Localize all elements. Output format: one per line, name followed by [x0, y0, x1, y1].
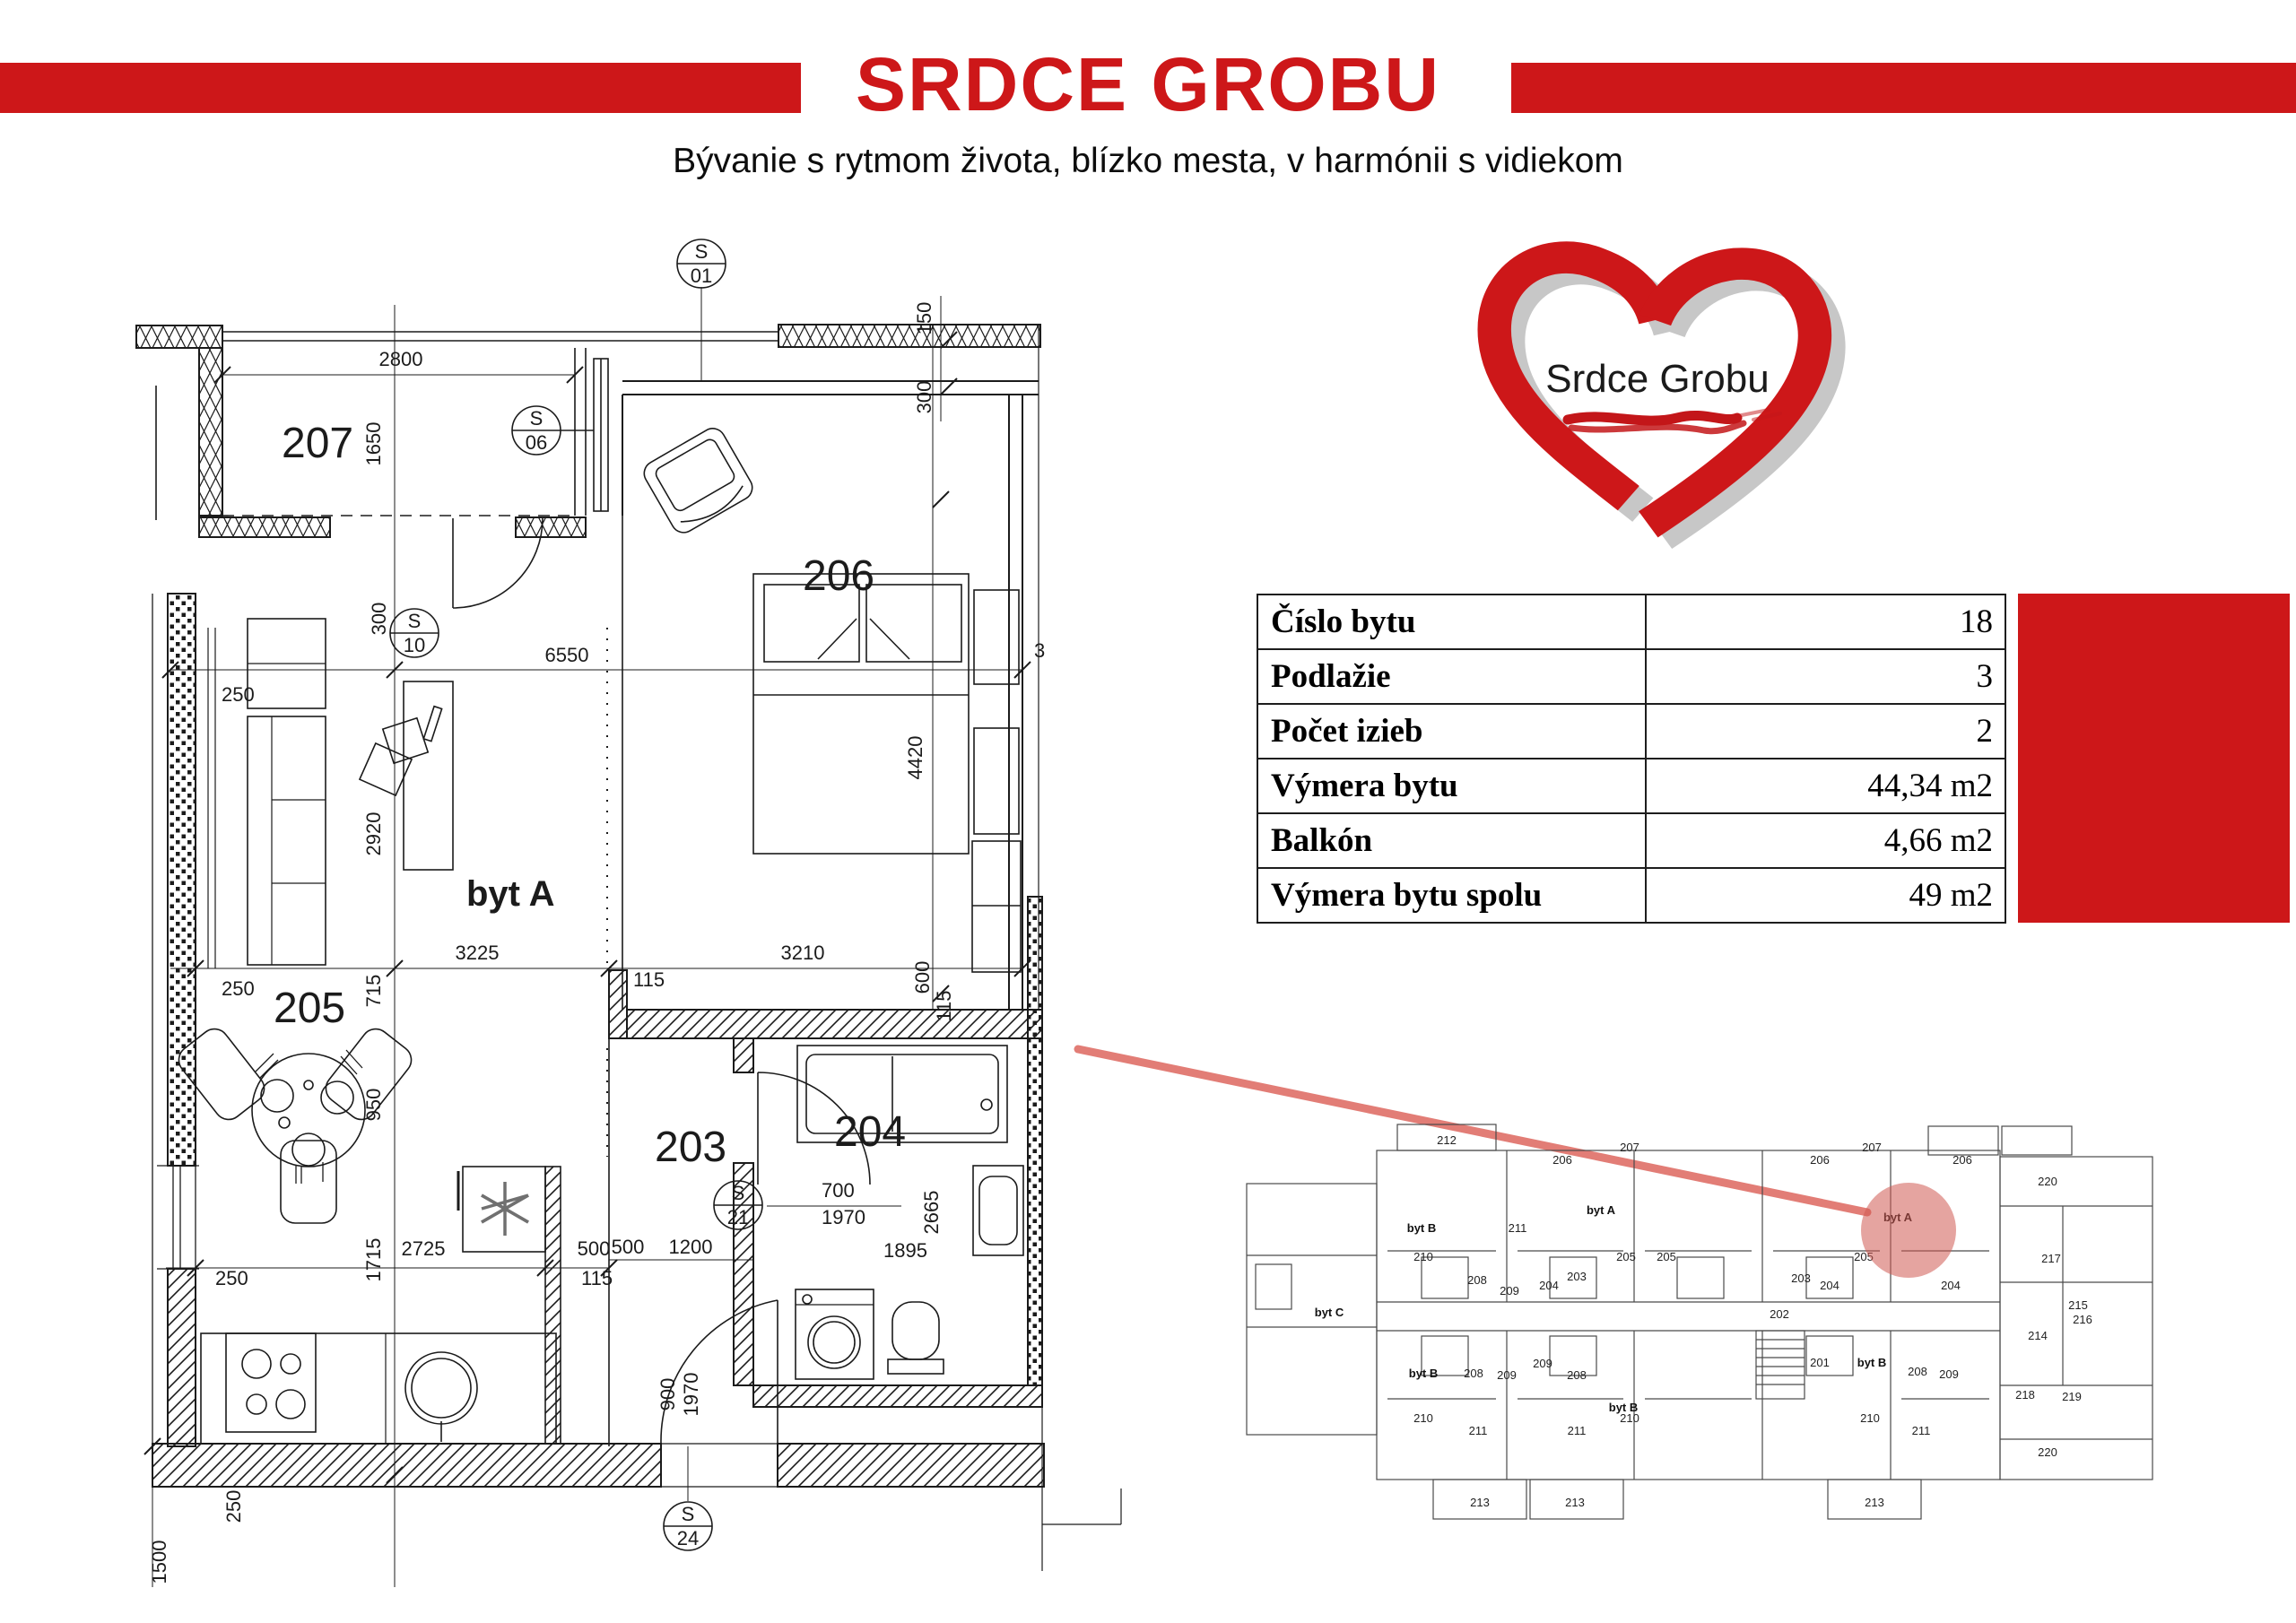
svg-text:4420: 4420 [904, 736, 926, 780]
svg-text:217: 217 [2041, 1252, 2061, 1265]
room-206-walls [622, 325, 1039, 1010]
svg-text:211: 211 [1912, 1424, 1931, 1437]
svg-text:S: S [682, 1503, 695, 1525]
svg-text:212: 212 [1437, 1133, 1457, 1147]
svg-text:115: 115 [581, 1267, 613, 1289]
brand-logo: Srdce Grobu [1494, 257, 1829, 536]
section-marker: S 21 [714, 1181, 762, 1229]
svg-text:S: S [732, 1182, 745, 1204]
svg-text:24: 24 [677, 1527, 699, 1549]
svg-text:205: 205 [1657, 1250, 1676, 1263]
svg-text:213: 213 [1565, 1496, 1585, 1509]
balcony-207-walls [156, 332, 778, 520]
svg-text:01: 01 [691, 265, 712, 287]
svg-text:1895: 1895 [883, 1239, 927, 1262]
svg-text:715: 715 [362, 975, 385, 1008]
svg-text:208: 208 [1467, 1273, 1487, 1287]
svg-text:220: 220 [2038, 1175, 2057, 1188]
svg-text:207: 207 [1620, 1141, 1639, 1154]
svg-text:250: 250 [222, 683, 255, 706]
svg-text:208: 208 [1567, 1368, 1587, 1382]
svg-text:10: 10 [404, 634, 425, 656]
svg-text:250: 250 [222, 977, 255, 1000]
svg-text:115: 115 [933, 990, 955, 1021]
toilet [888, 1302, 944, 1374]
svg-text:204: 204 [1820, 1279, 1839, 1292]
svg-text:byt B: byt B [1857, 1356, 1887, 1369]
svg-text:208: 208 [1464, 1367, 1483, 1380]
svg-text:3210: 3210 [781, 942, 825, 964]
svg-text:6550: 6550 [545, 644, 589, 666]
svg-text:213: 213 [1865, 1496, 1884, 1509]
snowflake-icon [482, 1182, 528, 1236]
svg-text:1715: 1715 [362, 1238, 385, 1282]
floor-plan: S 01 S 06 S 10 S 21 [136, 239, 1241, 1623]
drawing-overlay: Srdce Grobu [0, 0, 2296, 1623]
svg-text:206: 206 [1952, 1153, 1972, 1167]
svg-text:209: 209 [1533, 1357, 1552, 1370]
svg-text:211: 211 [1509, 1221, 1527, 1235]
svg-text:216: 216 [2073, 1313, 2092, 1326]
svg-text:500: 500 [578, 1237, 611, 1260]
section-markers: S 01 S 06 S 10 S 21 [390, 239, 762, 1550]
nightstands [972, 590, 1021, 972]
svg-text:1970: 1970 [680, 1373, 702, 1417]
svg-text:2725: 2725 [402, 1237, 446, 1260]
left-exterior-wall [152, 594, 199, 1446]
svg-text:S: S [408, 610, 422, 632]
svg-text:byt B: byt B [1407, 1221, 1437, 1235]
svg-text:S: S [695, 240, 709, 263]
unit-label: byt A [466, 874, 555, 914]
room-label-204: 204 [834, 1108, 906, 1156]
svg-text:byt B: byt B [1409, 1367, 1439, 1380]
bed [753, 574, 969, 854]
svg-text:byt A: byt A [1587, 1203, 1616, 1217]
svg-text:203: 203 [1567, 1270, 1587, 1283]
svg-text:207: 207 [1862, 1141, 1882, 1154]
svg-text:950: 950 [362, 1089, 385, 1122]
armchair [639, 424, 757, 537]
leader-line [1078, 1049, 1867, 1212]
svg-text:2665: 2665 [920, 1191, 943, 1235]
svg-text:213: 213 [1470, 1496, 1490, 1509]
hall-bath-walls [609, 897, 1042, 1446]
svg-text:208: 208 [1908, 1365, 1927, 1378]
dining-table [173, 1023, 417, 1223]
room-labels: 207 206 205 203 204 byt A [274, 420, 906, 1171]
svg-text:250: 250 [215, 1267, 248, 1289]
svg-text:203: 203 [1791, 1271, 1811, 1285]
svg-text:2920: 2920 [362, 812, 385, 856]
svg-text:209: 209 [1497, 1368, 1517, 1382]
svg-text:1970: 1970 [822, 1206, 865, 1228]
sofa [208, 619, 326, 968]
svg-text:214: 214 [2028, 1329, 2048, 1342]
svg-text:209: 209 [1500, 1284, 1519, 1298]
svg-text:3225: 3225 [456, 942, 500, 964]
svg-text:S: S [530, 407, 544, 430]
room-label-207: 207 [282, 420, 353, 467]
svg-text:115: 115 [633, 968, 665, 991]
svg-text:900: 900 [657, 1378, 679, 1411]
room-label-203: 203 [655, 1124, 726, 1171]
svg-text:204: 204 [1941, 1279, 1961, 1292]
svg-text:2800: 2800 [379, 348, 423, 370]
room-label-206: 206 [803, 552, 874, 600]
svg-text:211: 211 [1469, 1424, 1488, 1437]
svg-text:209: 209 [1939, 1367, 1959, 1381]
svg-text:210: 210 [1860, 1411, 1880, 1425]
svg-text:210: 210 [1413, 1411, 1433, 1425]
svg-text:300: 300 [913, 381, 935, 414]
brand-name: Srdce Grobu [1545, 357, 1769, 401]
svg-text:204: 204 [1539, 1279, 1559, 1292]
svg-text:218: 218 [2015, 1388, 2035, 1402]
svg-text:250: 250 [222, 1490, 245, 1523]
section-marker: S 24 [664, 1502, 712, 1550]
svg-text:202: 202 [1770, 1307, 1789, 1321]
bottom-exterior-wall [152, 1444, 1121, 1571]
svg-text:21: 21 [727, 1206, 749, 1228]
svg-text:206: 206 [1810, 1153, 1830, 1167]
svg-text:500: 500 [612, 1236, 645, 1258]
kitchen-counter [201, 1333, 556, 1444]
svg-text:220: 220 [2038, 1445, 2057, 1459]
svg-text:3: 3 [1034, 639, 1045, 662]
section-marker: S 06 [512, 406, 594, 455]
svg-text:700: 700 [822, 1179, 855, 1202]
svg-text:06: 06 [526, 431, 547, 454]
section-marker: S 01 [677, 239, 726, 288]
svg-text:219: 219 [2062, 1390, 2082, 1403]
svg-text:210: 210 [1413, 1250, 1433, 1263]
svg-text:600: 600 [911, 961, 934, 994]
svg-text:1200: 1200 [669, 1236, 713, 1258]
flyer-page: SRDCE GROBU Bývanie s rytmom života, blí… [0, 0, 2296, 1623]
mini-plan: 212 206 207 206 207 206 211 byt A byt A … [1247, 1124, 2152, 1519]
svg-text:215: 215 [2068, 1298, 2088, 1312]
svg-text:150: 150 [913, 302, 935, 335]
washing-machine [796, 1289, 874, 1379]
svg-text:300: 300 [368, 603, 390, 636]
svg-text:206: 206 [1552, 1153, 1572, 1167]
svg-text:201: 201 [1810, 1356, 1830, 1369]
svg-text:211: 211 [1568, 1424, 1587, 1437]
bath-sink [973, 1166, 1023, 1255]
svg-text:1650: 1650 [362, 422, 385, 466]
room-label-205: 205 [274, 985, 345, 1032]
section-marker: S 10 [390, 609, 439, 657]
svg-text:byt C: byt C [1315, 1306, 1344, 1319]
svg-text:205: 205 [1616, 1250, 1636, 1263]
highlight-circle [1861, 1183, 1956, 1278]
svg-text:210: 210 [1620, 1411, 1639, 1425]
svg-text:1500: 1500 [148, 1541, 170, 1584]
